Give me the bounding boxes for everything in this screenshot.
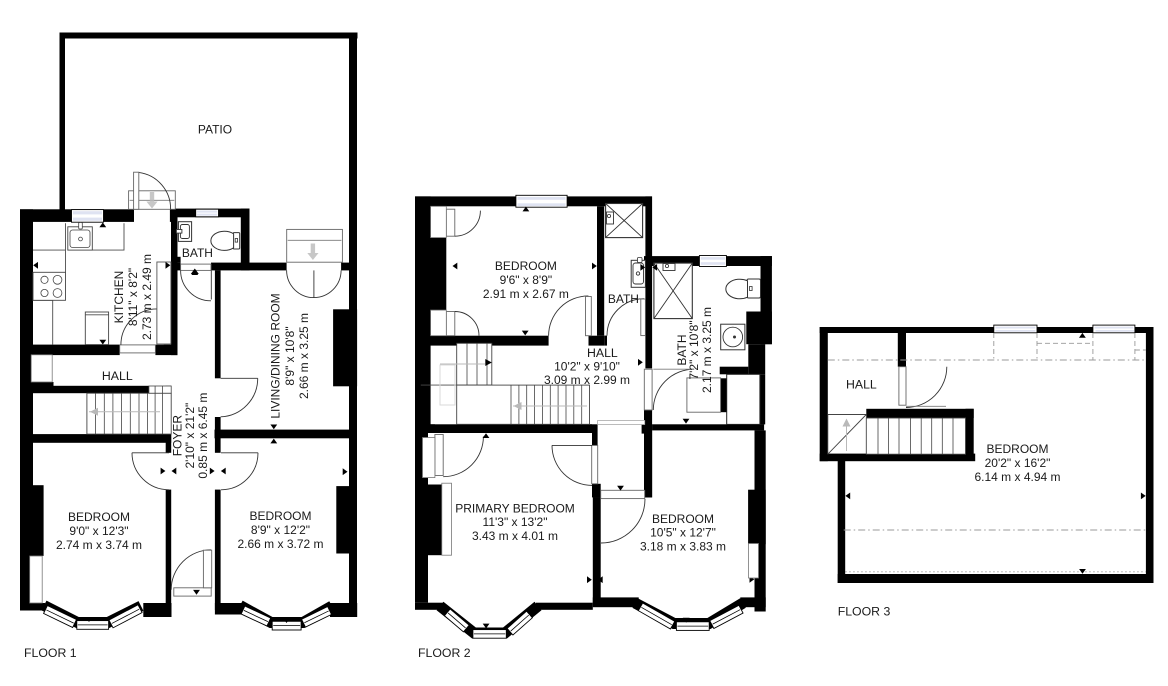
svg-text:2'10" x 21'2": 2'10" x 21'2" [183,403,197,469]
svg-text:FLOOR 3: FLOOR 3 [838,605,891,619]
svg-text:BEDROOM: BEDROOM [68,510,130,524]
svg-text:2.66 m x 3.72 m: 2.66 m x 3.72 m [237,537,323,551]
svg-text:BEDROOM: BEDROOM [652,512,714,526]
svg-text:BEDROOM: BEDROOM [249,509,311,523]
svg-text:3.18 m x 3.83 m: 3.18 m x 3.83 m [640,539,726,553]
svg-text:HALL: HALL [846,378,877,392]
svg-text:8'9" x 10'8": 8'9" x 10'8" [283,326,297,385]
svg-text:11'3" x 13'2": 11'3" x 13'2" [483,515,548,529]
svg-text:FLOOR 1: FLOOR 1 [24,646,77,660]
svg-text:BEDROOM: BEDROOM [495,259,557,273]
svg-text:KITCHEN: KITCHEN [112,271,126,324]
svg-text:8'11" x 8'2": 8'11" x 8'2" [126,268,140,326]
svg-text:HALL: HALL [102,369,133,383]
svg-text:3.43 m x 4.01 m: 3.43 m x 4.01 m [472,529,558,543]
svg-text:10'5" x 12'7": 10'5" x 12'7" [650,526,716,540]
svg-text:8'9" x 12'2": 8'9" x 12'2" [251,523,310,537]
svg-text:2.73 m x 2.49 m: 2.73 m x 2.49 m [140,254,154,340]
svg-text:9'0" x 12'3": 9'0" x 12'3" [69,524,128,538]
svg-text:LIVING/DINING ROOM: LIVING/DINING ROOM [268,293,282,418]
svg-text:2.17 m x 3.25 m: 2.17 m x 3.25 m [700,307,714,393]
svg-text:PRIMARY BEDROOM: PRIMARY BEDROOM [455,501,575,515]
svg-text:20'2" x 16'2": 20'2" x 16'2" [985,456,1051,470]
svg-text:10'2" x 9'10": 10'2" x 9'10" [554,359,620,373]
svg-text:2.91 m x 2.67 m: 2.91 m x 2.67 m [483,287,569,301]
svg-text:6.14 m x 4.94 m: 6.14 m x 4.94 m [974,470,1060,484]
svg-text:2.66 m x 3.25 m: 2.66 m x 3.25 m [297,313,311,399]
svg-text:3.09 m x 2.99 m: 3.09 m x 2.99 m [544,373,630,387]
svg-text:PATIO: PATIO [198,123,232,137]
svg-text:BATH: BATH [608,292,639,306]
svg-text:HALL: HALL [587,346,618,360]
svg-text:FLOOR 2: FLOOR 2 [418,646,471,660]
svg-text:2.74 m x 3.74 m: 2.74 m x 3.74 m [56,538,142,552]
svg-text:9'6" x 8'9": 9'6" x 8'9" [500,273,552,287]
svg-text:0.85 m x 6.45 m: 0.85 m x 6.45 m [196,393,210,479]
svg-text:BEDROOM: BEDROOM [986,442,1048,456]
svg-text:7'2" x 10'8": 7'2" x 10'8" [687,320,701,379]
svg-text:BATH: BATH [182,246,213,260]
